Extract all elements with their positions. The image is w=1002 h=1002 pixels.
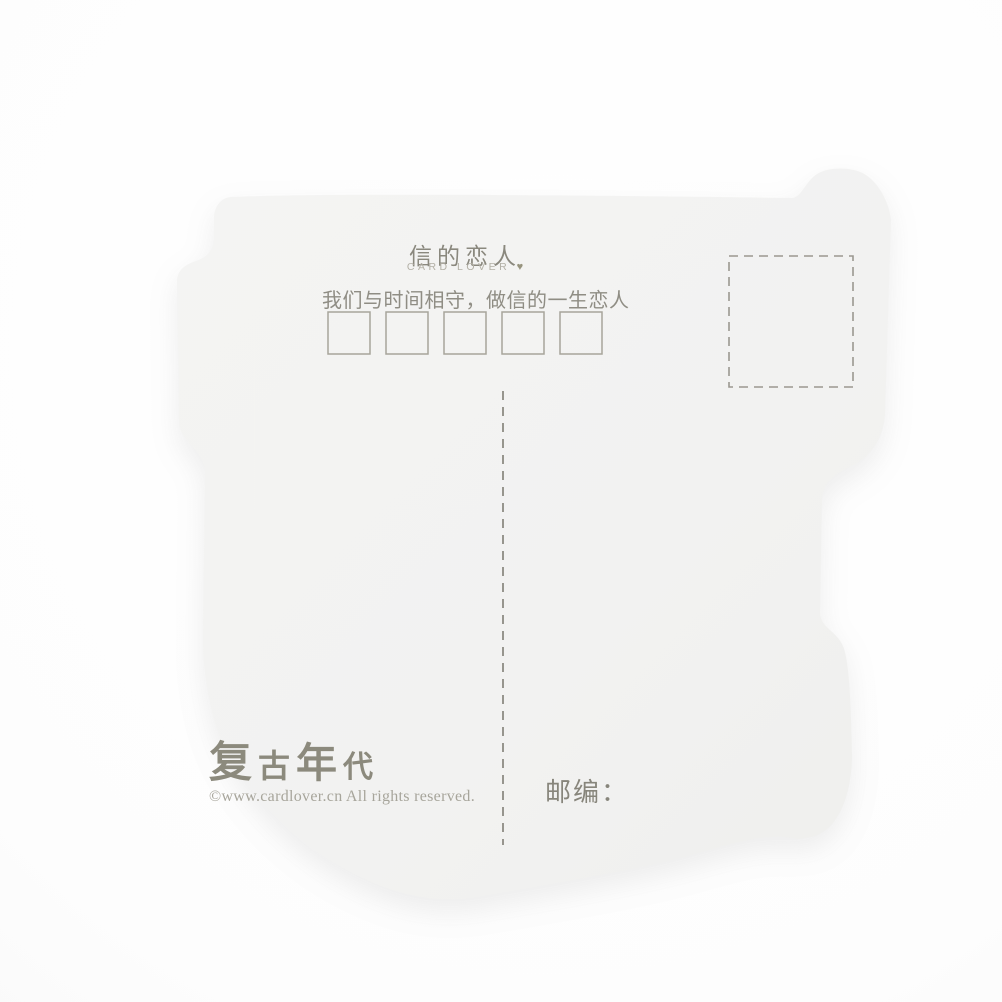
brand-logo-char: 古 (258, 750, 290, 782)
brand-block: 复古年代 ©www.cardlover.cn All rights reserv… (209, 742, 475, 806)
heart-icon: ♥ (517, 261, 524, 273)
postcard-tagline: 我们与时间相守，做信的一生恋人 (322, 284, 630, 313)
brand-logo-char: 代 (343, 753, 373, 783)
brand-logo-char: 年 (296, 743, 337, 784)
postcard-subtitle-en: CARD LOVER ♥ (320, 261, 610, 273)
product-photo: 信的恋人 CARD LOVER ♥ 我们与时间相守，做信的一生恋人 邮编： 复古… (0, 0, 1002, 1002)
brand-logo: 复古年代 (209, 742, 475, 785)
copyright-text: ©www.cardlover.cn All rights reserved. (209, 788, 475, 806)
card-lover-label: CARD LOVER (407, 261, 510, 273)
brand-logo-char: 复 (209, 742, 252, 785)
postcard (0, 0, 1002, 1002)
postal-code-label: 邮编： (545, 772, 629, 809)
